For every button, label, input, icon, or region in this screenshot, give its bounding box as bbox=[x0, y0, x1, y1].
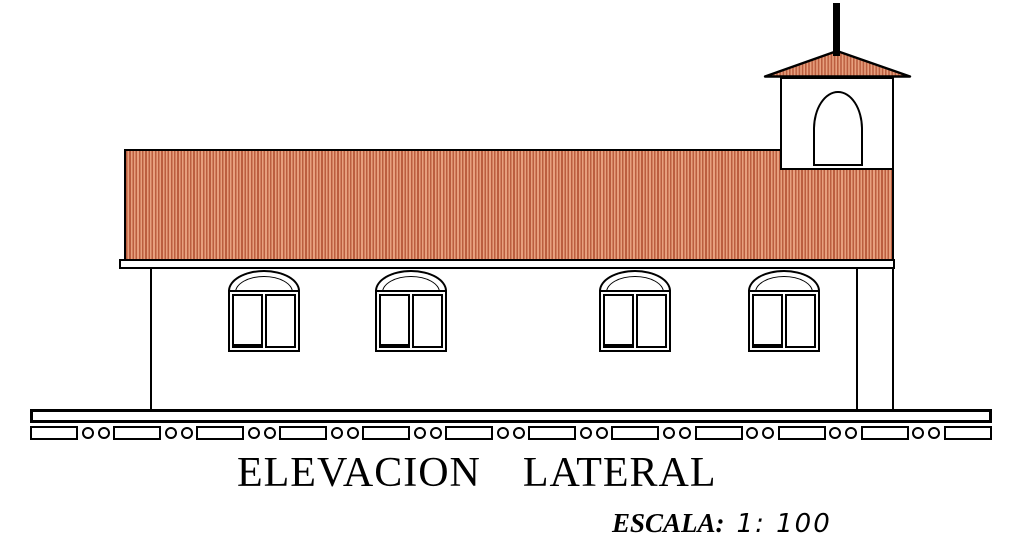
window-pane-left bbox=[232, 294, 263, 348]
ground-ring bbox=[912, 427, 924, 439]
window-pane-left bbox=[379, 294, 410, 348]
ground-ring bbox=[497, 427, 509, 439]
window-frame bbox=[228, 290, 300, 352]
scale-label: ESCALA: bbox=[612, 508, 725, 539]
window-arch bbox=[228, 270, 300, 292]
ground-ring bbox=[248, 427, 260, 439]
ground-ring bbox=[762, 427, 774, 439]
ground-ring bbox=[264, 427, 276, 439]
ground-ring bbox=[347, 427, 359, 439]
ground-ring bbox=[82, 427, 94, 439]
ground-rings bbox=[497, 427, 525, 439]
tower-window bbox=[813, 91, 863, 166]
bell-tower-body bbox=[780, 77, 894, 170]
ground-ring bbox=[746, 427, 758, 439]
window-pane-right bbox=[265, 294, 296, 348]
ground-ring bbox=[513, 427, 525, 439]
ground-beam bbox=[30, 409, 992, 423]
ground-ring bbox=[829, 427, 841, 439]
left-wall-line bbox=[150, 268, 152, 411]
ground-block bbox=[362, 426, 410, 440]
ground-rings bbox=[912, 427, 940, 439]
window-2 bbox=[375, 270, 447, 352]
ground-ring bbox=[580, 427, 592, 439]
scale-value: 1: 100 bbox=[737, 509, 832, 539]
window-4 bbox=[748, 270, 820, 352]
ground-block bbox=[528, 426, 576, 440]
title-word-2: LATERAL bbox=[523, 449, 717, 497]
window-arch bbox=[748, 270, 820, 292]
window-arch bbox=[375, 270, 447, 292]
window-pane-left bbox=[603, 294, 634, 348]
ground-ring bbox=[596, 427, 608, 439]
ground-ring bbox=[165, 427, 177, 439]
main-roof bbox=[124, 149, 894, 259]
tower-right-wall-line bbox=[892, 268, 894, 411]
ground-block bbox=[113, 426, 161, 440]
ground-rings bbox=[663, 427, 691, 439]
window-arch bbox=[599, 270, 671, 292]
ground-ring bbox=[845, 427, 857, 439]
ground-ring bbox=[928, 427, 940, 439]
ground-ring bbox=[181, 427, 193, 439]
ground-block bbox=[695, 426, 743, 440]
ground-rings bbox=[414, 427, 442, 439]
title-word-1: ELEVACION bbox=[237, 449, 481, 497]
window-pane-right bbox=[636, 294, 667, 348]
ground-rings bbox=[165, 427, 193, 439]
ground-rings bbox=[829, 427, 857, 439]
window-frame bbox=[599, 290, 671, 352]
ground-block bbox=[611, 426, 659, 440]
ground-block bbox=[279, 426, 327, 440]
drawing-title: ELEVACION LATERAL bbox=[237, 449, 717, 497]
window-pane-left bbox=[752, 294, 783, 348]
ground-block bbox=[445, 426, 493, 440]
ground-block bbox=[861, 426, 909, 440]
ground-ring bbox=[98, 427, 110, 439]
elevation-drawing: ELEVACION LATERAL ESCALA: 1: 100 bbox=[0, 0, 1024, 550]
ground-pattern bbox=[30, 425, 992, 441]
ground-block bbox=[778, 426, 826, 440]
ground-rings bbox=[746, 427, 774, 439]
ground-ring bbox=[663, 427, 675, 439]
ground-block bbox=[196, 426, 244, 440]
ground-ring bbox=[430, 427, 442, 439]
roof-fascia bbox=[119, 259, 895, 269]
ground-ring bbox=[414, 427, 426, 439]
window-1 bbox=[228, 270, 300, 352]
right-wall-line bbox=[856, 268, 858, 411]
ground-rings bbox=[331, 427, 359, 439]
ground-block bbox=[944, 426, 992, 440]
window-frame bbox=[375, 290, 447, 352]
window-pane-right bbox=[412, 294, 443, 348]
ground-block bbox=[30, 426, 78, 440]
ground-rings bbox=[248, 427, 276, 439]
ground-ring bbox=[331, 427, 343, 439]
ground-rings bbox=[580, 427, 608, 439]
window-3 bbox=[599, 270, 671, 352]
window-frame bbox=[748, 290, 820, 352]
ground-rings bbox=[82, 427, 110, 439]
mast-icon bbox=[833, 3, 840, 56]
scale-note: ESCALA: 1: 100 bbox=[612, 508, 832, 539]
window-pane-right bbox=[785, 294, 816, 348]
ground-ring bbox=[679, 427, 691, 439]
